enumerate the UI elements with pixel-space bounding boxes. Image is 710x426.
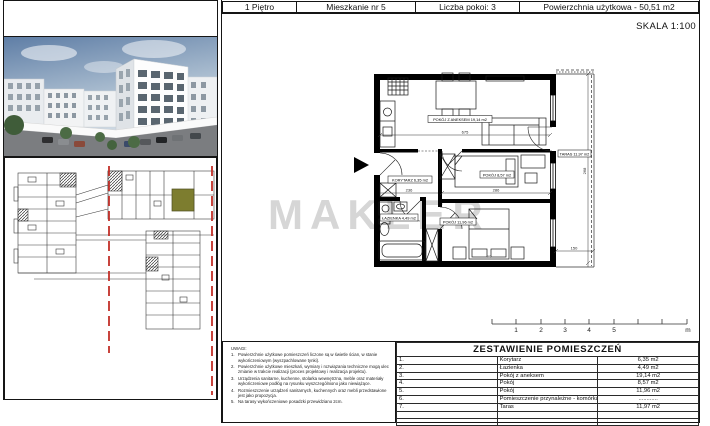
note-item: 5. Na tarasy wykończeniowe posadzki prze… bbox=[231, 399, 389, 404]
dim-label: 286 bbox=[493, 188, 500, 193]
scale-tick-label: 2 bbox=[539, 327, 543, 334]
apartment-floor-plan: MAKLER bbox=[222, 15, 700, 339]
scale-bar-labels: 1 2 3 4 5 m bbox=[514, 327, 691, 334]
bottom-panel: UWAGI: 1. Powierzchnie użytkowe pomieszc… bbox=[222, 341, 700, 423]
scale-tick-label: 1 bbox=[514, 327, 518, 334]
room-label-corridor: KORYTARZ 6,35 m2 bbox=[392, 177, 428, 182]
note-item: 2. Powierzchnie użytkowe mieszkań, wymia… bbox=[231, 364, 389, 375]
left-building bbox=[14, 173, 76, 273]
building-photo-render bbox=[4, 37, 217, 156]
scale-tick-label: 3 bbox=[563, 327, 567, 334]
table-row: 7. Taras 11,97 m2 bbox=[397, 403, 699, 411]
title-block: 1 Piętro Mieszkanie nr 5 Liczba pokoi: 3… bbox=[222, 1, 699, 14]
room-label-bedroom-small: POKÓJ 8,57 m2 bbox=[483, 172, 511, 177]
terrace-outline bbox=[556, 70, 594, 267]
highlighted-unit bbox=[172, 189, 194, 211]
note-item: 1. Powierzchnie użytkowe pomieszczeń lic… bbox=[231, 352, 389, 363]
room-label-bedroom-large: POKÓJ 11,96 m2 bbox=[443, 219, 473, 224]
table-row: 5. Pokój 11,96 m2 bbox=[397, 388, 699, 396]
dim-label: 268 bbox=[582, 167, 587, 174]
rooms-table-title-row: ZESTAWIENIE POMIESZCZEŃ bbox=[397, 343, 699, 357]
plan-sheet: { "header": { "floor": "1 Piętro", "apar… bbox=[0, 0, 710, 425]
dim-label: 675 bbox=[462, 130, 469, 135]
nightstand bbox=[453, 247, 466, 259]
floor-cell: 1 Piętro bbox=[223, 2, 297, 12]
right-building-lower-wing bbox=[146, 231, 200, 329]
rooms-table-title: ZESTAWIENIE POMIESZCZEŃ bbox=[397, 343, 699, 357]
dim-label: 236 bbox=[406, 188, 413, 193]
section-cut-lines bbox=[109, 166, 212, 395]
windows bbox=[551, 95, 556, 247]
rooms-count-cell: Liczba pokoi: 3 bbox=[416, 2, 520, 12]
site-plan-drawing bbox=[4, 157, 217, 400]
note-item: 4. Rozmieszczenie urządzeń sanitarnych, … bbox=[231, 388, 389, 399]
desk bbox=[521, 155, 545, 168]
building-photo bbox=[4, 37, 217, 157]
site-plan bbox=[4, 157, 217, 400]
table-empty-row bbox=[397, 411, 699, 418]
logo-box bbox=[4, 1, 217, 37]
nightstand bbox=[511, 247, 524, 259]
dining-table bbox=[436, 81, 476, 109]
dim-label: 150 bbox=[571, 246, 578, 251]
note-item: 3. Urządzenia sanitarne, kuchenne, stola… bbox=[231, 376, 389, 387]
stove bbox=[388, 78, 408, 95]
notes-block: UWAGI: 1. Powierzchnie użytkowe pomieszc… bbox=[223, 342, 395, 422]
table-row: 2. Łazienka 4,49 m2 bbox=[397, 364, 699, 372]
scale-tick-label: 4 bbox=[587, 327, 591, 334]
table-row: 3. Pokój z aneksem 19,14 m2 bbox=[397, 372, 699, 380]
room-label-living: POKÓJ Z ANEKSEM 19,14 m2 bbox=[433, 117, 487, 122]
room-label-bathroom: ŁAZIENKA 4,49 m2 bbox=[382, 215, 416, 220]
scale-unit-label: m bbox=[685, 327, 690, 334]
table-empty-row bbox=[397, 418, 699, 425]
dim-label: 90 bbox=[487, 254, 492, 259]
table-row: 4. Pokój 8,57 m2 bbox=[397, 380, 699, 388]
cloud bbox=[21, 45, 77, 61]
right-building-top-wing bbox=[108, 171, 214, 219]
usable-area-cell: Powierzchnia użytkowa - 50,51 m2 bbox=[520, 2, 698, 12]
left-panel bbox=[3, 0, 218, 400]
notes-title: UWAGI: bbox=[231, 346, 389, 351]
scale-tick-label: 5 bbox=[612, 327, 616, 334]
rooms-table-wrap: ZESTAWIENIE POMIESZCZEŃ 1. Korytarz 6,35… bbox=[395, 342, 699, 422]
sink bbox=[384, 108, 392, 116]
rooms-table: ZESTAWIENIE POMIESZCZEŃ 1. Korytarz 6,35… bbox=[396, 342, 699, 426]
apartment-cell: Mieszkanie nr 5 bbox=[297, 2, 416, 12]
scale-bar bbox=[492, 319, 687, 324]
entrance-arrow-icon bbox=[354, 157, 369, 173]
room-label-terrace: TARAS 11,97 m2 bbox=[560, 151, 590, 156]
table-row: 1. Korytarz 6,35 m2 bbox=[397, 357, 699, 365]
table-row: 6. Pomieszczenie przynależne - komórka l… bbox=[397, 395, 699, 403]
